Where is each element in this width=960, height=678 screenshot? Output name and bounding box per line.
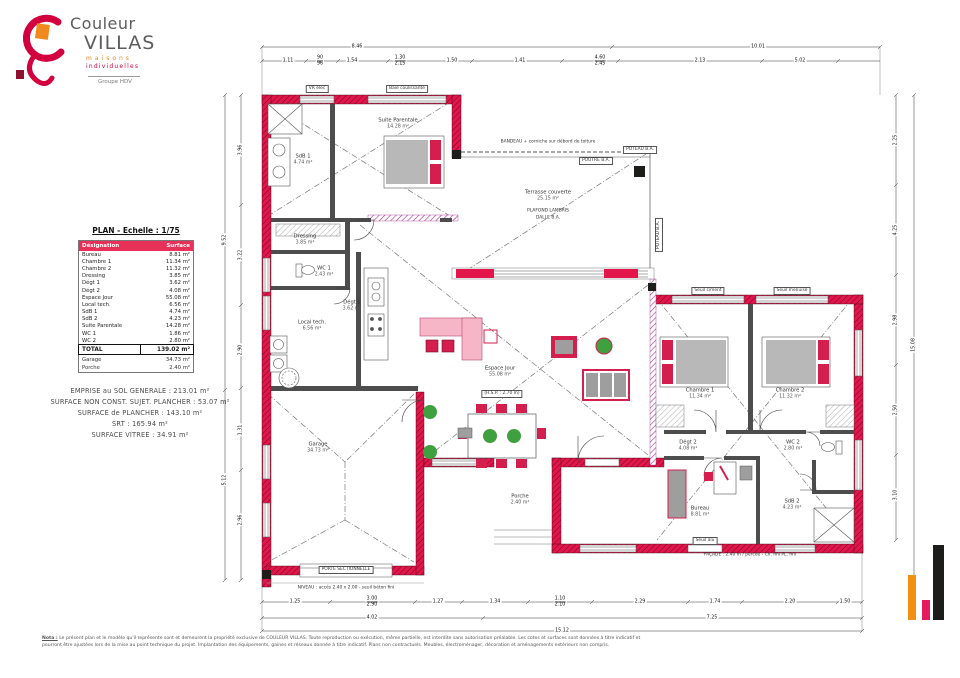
note-line1: Le présent plan et le modèle qu'il repré… <box>59 636 640 641</box>
local-tech-equip <box>270 336 299 388</box>
wardrobes <box>276 224 854 427</box>
terrace-outline <box>455 152 650 279</box>
bureau-furniture <box>668 462 752 518</box>
bar-pink <box>922 600 930 620</box>
terrace-bay-window <box>452 268 654 279</box>
wc2-toilet <box>822 441 843 454</box>
note-line2: pourront être ajustées lors de la mise a… <box>42 643 922 650</box>
note-prefix: Nota : <box>42 636 58 641</box>
kitchen-island <box>420 318 497 360</box>
bar-black <box>933 545 944 620</box>
sofa-tv <box>551 336 629 400</box>
interior-walls <box>271 104 854 544</box>
sdb2-shower <box>814 508 854 542</box>
wc1-toilet <box>296 264 315 277</box>
kitchen-counter <box>364 268 388 360</box>
bed-suite <box>384 136 444 188</box>
sdb1-fixtures <box>268 104 302 186</box>
footer-note: Nota : Le présent plan et le modèle qu'i… <box>42 636 922 649</box>
bed-chambre1 <box>660 337 728 387</box>
floor-plan-drawing <box>0 0 960 678</box>
bar-orange <box>908 575 916 620</box>
columns <box>262 150 656 579</box>
floor-plan-page: Couleur VILLAS maisons individuelles Gro… <box>0 0 960 678</box>
bed-chambre2 <box>762 337 830 387</box>
